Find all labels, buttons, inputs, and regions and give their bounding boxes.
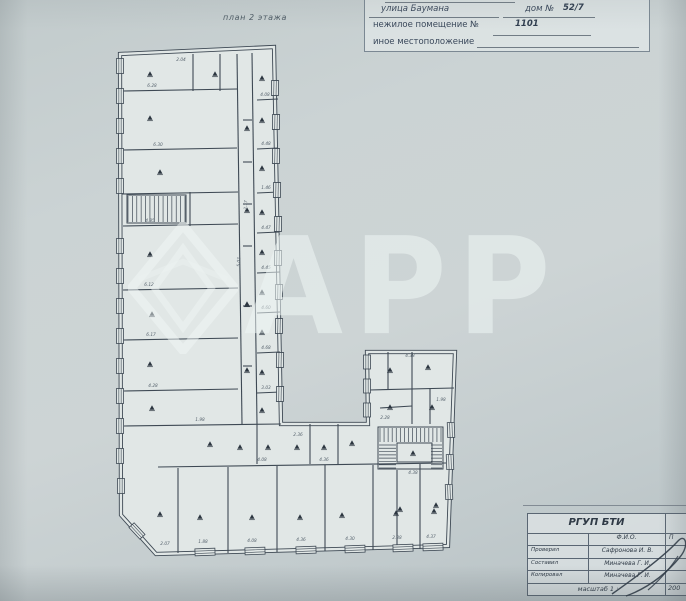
svg-text:2.07: 2.07 [160, 541, 170, 547]
street-value: улица Баумана [381, 4, 449, 14]
svg-text:4.30: 4.30 [345, 536, 355, 542]
svg-text:4.08: 4.08 [247, 538, 257, 544]
org-name: РГУП БТИ [528, 517, 665, 528]
underline [385, 2, 515, 3]
svg-text:6.17: 6.17 [146, 332, 156, 338]
svg-text:4.28: 4.28 [148, 383, 158, 389]
scale-label: масштаб 1 : [548, 585, 648, 593]
building-outline [120, 47, 455, 554]
row-role: Проверил [531, 547, 559, 553]
svg-text:4.36: 4.36 [319, 457, 329, 463]
svg-text:6.12: 6.12 [144, 282, 154, 288]
signature-header: П [669, 534, 674, 541]
svg-text:2.38: 2.38 [392, 535, 402, 541]
underline [477, 47, 639, 48]
house-label: дом № [525, 4, 554, 14]
underline [493, 35, 591, 36]
fio-header: Ф.И.О. [588, 534, 665, 541]
row-name: Миначева Г. И. [590, 560, 665, 567]
row-name: Миначева Г. И. [590, 572, 665, 579]
svg-text:4.37: 4.37 [426, 534, 436, 540]
house-value: 52/7 [563, 3, 584, 13]
svg-text:2.04: 2.04 [176, 57, 186, 63]
titleblock-topline [523, 505, 686, 506]
premises-label: нежилое помещение № [373, 20, 479, 30]
row-role: Копировал [531, 572, 562, 578]
svg-text:5.02: 5.02 [236, 257, 242, 267]
row-name: Сафронова И. В. [590, 547, 665, 554]
svg-text:2.36: 2.36 [293, 432, 303, 438]
svg-text:4.38: 4.38 [408, 470, 418, 476]
svg-text:2.17: 2.17 [243, 200, 249, 210]
svg-text:6.30: 6.30 [153, 142, 163, 148]
svg-text:1.88: 1.88 [198, 539, 208, 545]
title-block: РГУП БТИ Ф.И.О. П Проверил Сафронова И. … [527, 513, 686, 596]
address-box: улица Баумана дом № 52/7 нежилое помещен… [364, 0, 650, 52]
svg-text:4.85: 4.85 [145, 218, 155, 224]
svg-text:3.03: 3.03 [261, 385, 271, 391]
other-location-label: иное местоположение [373, 37, 474, 47]
row-divider [528, 583, 686, 584]
svg-text:1.46: 1.46 [261, 185, 271, 191]
svg-text:4.68: 4.68 [261, 345, 271, 351]
row-role: Составил [531, 560, 558, 566]
svg-text:4.48: 4.48 [261, 141, 271, 147]
svg-text:4.36: 4.36 [296, 537, 306, 543]
svg-text:2.28: 2.28 [380, 415, 390, 421]
svg-text:1.98: 1.98 [195, 417, 205, 423]
svg-text:4.08: 4.08 [257, 457, 267, 463]
svg-text:4.45: 4.45 [261, 265, 271, 271]
svg-text:4.38: 4.38 [405, 353, 415, 359]
scale-value: 200 [668, 584, 680, 592]
svg-text:4.08: 4.08 [260, 92, 270, 98]
underline [369, 17, 499, 18]
document-page: 2.046.284.086.304.484.851.464.476.124.45… [0, 0, 686, 601]
svg-text:1.98: 1.98 [436, 397, 446, 403]
svg-text:6.28: 6.28 [147, 83, 157, 89]
svg-text:4.47: 4.47 [261, 225, 271, 231]
svg-text:4.60: 4.60 [261, 305, 271, 311]
underline [503, 17, 595, 18]
premises-number: 1101 [515, 19, 539, 29]
floor-plan-svg: 2.046.284.086.304.484.851.464.476.124.45… [0, 0, 686, 601]
plan-title: план 2 этажа [200, 13, 310, 22]
column-divider [665, 514, 666, 595]
